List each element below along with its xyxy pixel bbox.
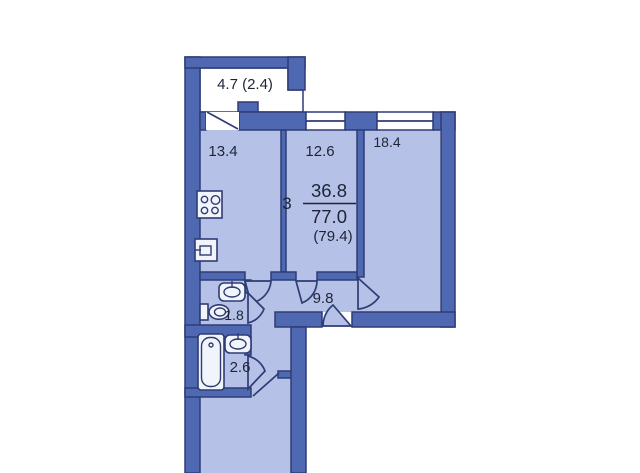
bathroom-sink-icon	[225, 333, 251, 353]
kitchen-area-label: 13.4	[208, 143, 237, 160]
area-with-balcony-label: (79.4)	[313, 228, 352, 245]
rooms-count-label: 3	[282, 194, 291, 213]
total-area-label: 77.0	[311, 206, 347, 227]
balcony-area-label: 4.7 (2.4)	[217, 76, 273, 93]
room-b-area-label: 18.4	[373, 134, 400, 150]
wall-balcony-door-stub	[238, 102, 258, 112]
wall-hall-top-seg2	[271, 272, 296, 280]
living-area-label: 36.8	[311, 180, 347, 201]
wc-area-label: 1.8	[224, 307, 244, 323]
floorplan: 4.7 (2.4) 13.4 12.6 18.4 1.8 2.6 9.8 3 3…	[0, 0, 640, 473]
stove-icon	[197, 191, 222, 218]
wall-top-seg2	[239, 112, 306, 130]
room-a-area-label: 12.6	[305, 143, 334, 160]
wall-top-seg3	[345, 112, 377, 130]
wall-top-seg1	[200, 112, 206, 130]
wall-corridor-stub	[278, 371, 292, 378]
wall-bottom-room-right	[291, 327, 306, 473]
wall-entrance-left	[275, 312, 322, 327]
wall-hall-top-seg1	[200, 272, 245, 280]
wc-sink-icon	[219, 281, 245, 301]
kitchen-sink-icon	[195, 239, 217, 261]
wall-balcony-right-pier	[288, 57, 305, 90]
wall-room-b-bottom	[352, 312, 455, 327]
floorplan-canvas: 4.7 (2.4) 13.4 12.6 18.4 1.8 2.6 9.8 3 3…	[0, 0, 640, 473]
wall-rooms-divider	[357, 130, 364, 277]
wall-right-outer	[441, 112, 455, 327]
bathtub-icon	[198, 334, 224, 390]
wall-left-outer	[185, 57, 200, 473]
wall-balcony-top	[185, 57, 305, 68]
wall-hall-top-seg3	[317, 272, 357, 280]
hallway-area-label: 9.8	[313, 290, 334, 307]
bathroom-area-label: 2.6	[230, 359, 251, 376]
